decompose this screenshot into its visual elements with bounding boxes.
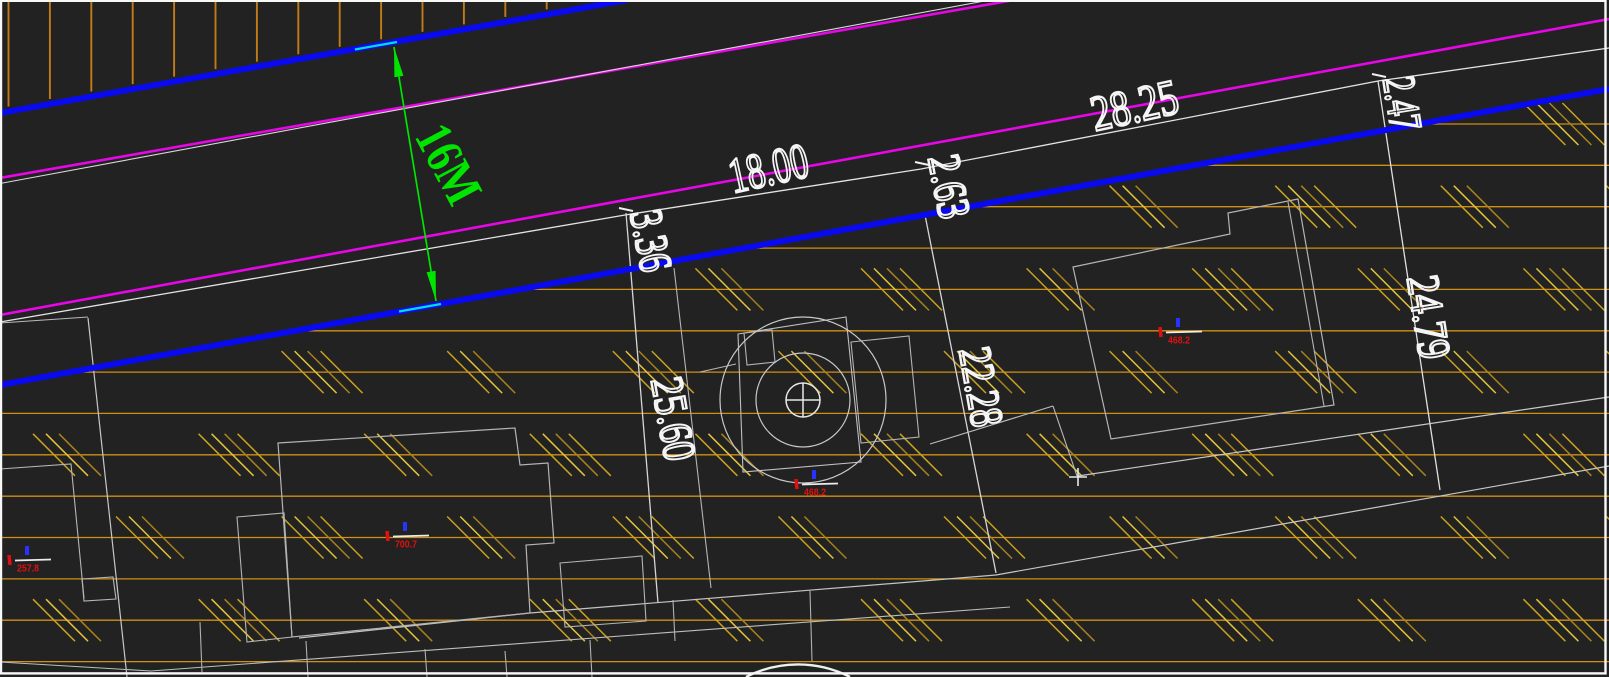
svg-text:468.2: 468.2 [1168,335,1190,347]
svg-text:257.8: 257.8 [17,563,39,575]
svg-text:2.47: 2.47 [1373,73,1432,134]
svg-text:468.2: 468.2 [804,487,826,499]
svg-text:700.7: 700.7 [395,539,417,551]
